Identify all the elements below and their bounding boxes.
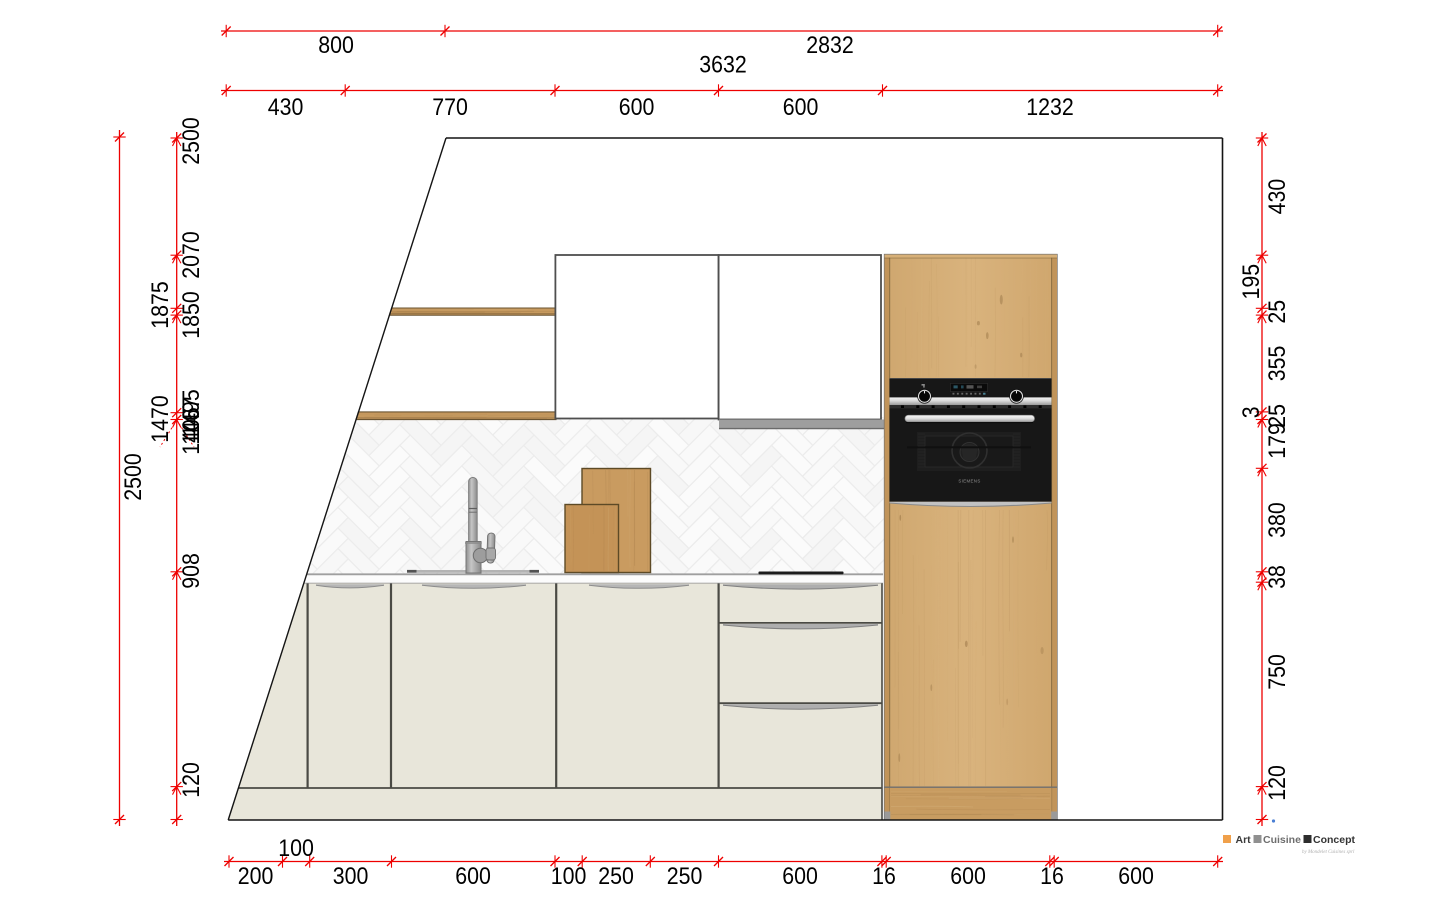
svg-text:1850: 1850 (177, 291, 204, 338)
svg-text:38: 38 (1263, 565, 1290, 589)
svg-text:16: 16 (1040, 862, 1064, 889)
svg-text:2500: 2500 (177, 117, 204, 164)
svg-text:300: 300 (333, 862, 369, 889)
svg-text:430: 430 (1263, 179, 1290, 215)
svg-text:3632: 3632 (699, 50, 746, 77)
svg-text:600: 600 (455, 862, 491, 889)
svg-text:120: 120 (177, 762, 204, 798)
svg-text:430: 430 (268, 93, 304, 120)
svg-text:250: 250 (667, 862, 703, 889)
svg-text:1470: 1470 (146, 395, 173, 442)
svg-text:908: 908 (177, 553, 204, 589)
svg-text:195: 195 (1237, 264, 1264, 300)
svg-text:1405: 1405 (177, 407, 204, 454)
svg-text:750: 750 (1263, 654, 1290, 690)
svg-text:200: 200 (238, 862, 274, 889)
svg-text:3: 3 (1237, 406, 1264, 418)
svg-text:SIEMENS: SIEMENS (958, 479, 980, 484)
svg-text:Art: Art (1236, 834, 1252, 846)
svg-text:179: 179 (1263, 423, 1290, 459)
svg-text:600: 600 (950, 862, 986, 889)
svg-text:120: 120 (1263, 765, 1290, 801)
svg-text:250: 250 (598, 862, 634, 889)
svg-text:600: 600 (619, 93, 655, 120)
svg-text:by Mondelet Cuisines sprl: by Mondelet Cuisines sprl (1302, 850, 1355, 855)
svg-text:2832: 2832 (806, 31, 853, 58)
svg-text:1232: 1232 (1026, 93, 1073, 120)
svg-text:Cuisine: Cuisine (1263, 834, 1301, 846)
svg-text:16: 16 (872, 862, 896, 889)
svg-text:800: 800 (318, 31, 354, 58)
svg-text:25: 25 (1263, 300, 1290, 324)
svg-text:2500: 2500 (119, 453, 146, 500)
svg-text:1875: 1875 (146, 281, 173, 328)
svg-text:Concept: Concept (1313, 834, 1356, 846)
svg-text:2070: 2070 (177, 231, 204, 278)
svg-text:600: 600 (783, 93, 819, 120)
svg-text:100: 100 (551, 862, 587, 889)
svg-text:355: 355 (1263, 346, 1290, 382)
svg-text:380: 380 (1263, 502, 1290, 538)
svg-text:600: 600 (782, 862, 818, 889)
svg-text:100: 100 (278, 834, 314, 861)
svg-text:600: 600 (1118, 862, 1154, 889)
svg-text:770: 770 (432, 93, 468, 120)
